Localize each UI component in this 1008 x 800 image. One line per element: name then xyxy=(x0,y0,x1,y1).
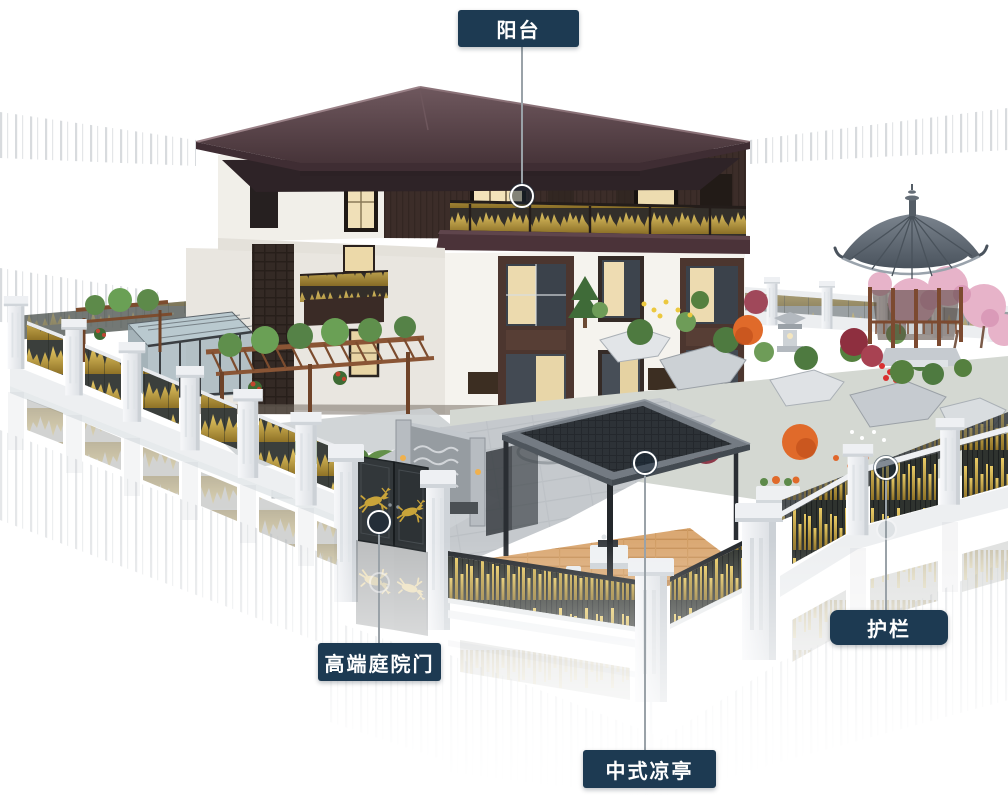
railing-hotspot[interactable] xyxy=(874,456,898,480)
floor-fade xyxy=(0,540,1008,800)
railing-label[interactable]: 护栏 xyxy=(830,610,948,645)
villa-courtyard-diagram: 阳台 高端庭院门 中式凉亭 护栏 xyxy=(0,0,1008,800)
balcony-label[interactable]: 阳台 xyxy=(458,10,579,47)
pavilion-hotspot[interactable] xyxy=(633,451,657,475)
courtyard-illustration xyxy=(0,0,1008,800)
balcony-callout-line xyxy=(521,47,523,186)
gate-hotspot-reflection xyxy=(369,572,390,593)
gate-label[interactable]: 高端庭院门 xyxy=(318,643,441,681)
railing-callout-line xyxy=(885,479,887,610)
balcony-hotspot[interactable] xyxy=(510,184,534,208)
pavilion-label[interactable]: 中式凉亭 xyxy=(583,750,716,788)
railing-hotspot-reflection xyxy=(876,519,897,540)
gate-hotspot[interactable] xyxy=(367,510,391,534)
pavilion-callout-line xyxy=(644,474,646,750)
